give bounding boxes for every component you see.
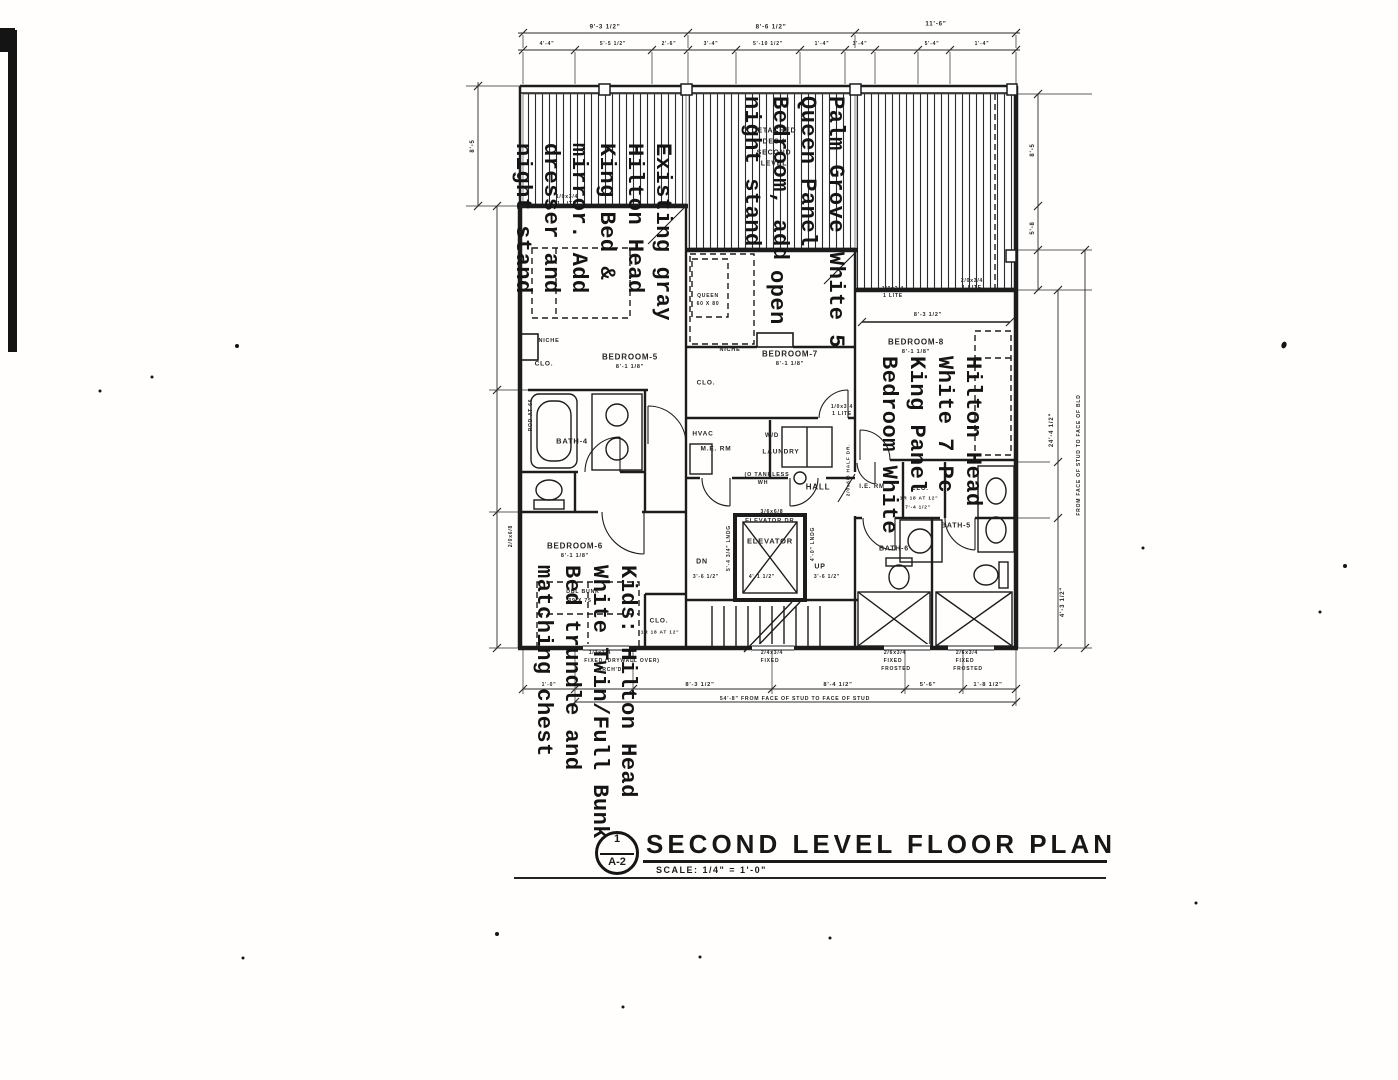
plan-label: 8'-5 xyxy=(470,139,476,152)
plan-label: FIXED xyxy=(761,658,780,664)
plan-label: 1'-4" xyxy=(975,41,990,47)
plan-label: 2/6x3/4 xyxy=(884,650,906,656)
plan-label: UP xyxy=(814,564,825,571)
plan-label: 2/0x6/8 xyxy=(508,525,514,547)
plan-label: BEDROOM-8 xyxy=(888,338,944,347)
plan-label: 2'-6" xyxy=(662,41,677,47)
plan-label: 8'-3 1/2" xyxy=(914,312,942,318)
plan-label: 5'-4 3/4" LNDG xyxy=(726,525,732,571)
plan-label: DN xyxy=(696,559,708,566)
plan-label: 4'-4" xyxy=(540,41,555,47)
plan-label: 8'-4 1/2" xyxy=(823,682,852,688)
plan-label: BEDROOM-6 xyxy=(547,542,603,551)
plan-label: 4'-3 1/2" xyxy=(1060,587,1066,617)
plan-label: 3'-6 1/2" xyxy=(693,574,719,580)
plan-label: 5'-10 1/2" xyxy=(753,41,783,47)
plan-label: 54'-8" FROM FACE OF STUD TO FACE OF STUD xyxy=(720,696,870,702)
plan-label: 3'-6 1/2" xyxy=(814,574,840,580)
plan-label: 2/0x6/8 HALF DR. xyxy=(847,444,852,497)
bathtub xyxy=(531,394,577,468)
plan-label: 9'-3 1/2" xyxy=(590,24,621,31)
detail-ref-number: 1 xyxy=(595,833,639,845)
plan-label: HALL xyxy=(806,483,831,492)
toilet-bowl xyxy=(974,565,998,585)
plan-label: FROM FACE OF STUD TO FACE OF BLD xyxy=(1076,394,1082,515)
plan-label: BATH-6 xyxy=(879,546,909,553)
plan-label: 1 LITE xyxy=(962,285,982,291)
plan-label: 8'-6 1/2" xyxy=(756,24,787,31)
plan-label: 8'-3 1/2" xyxy=(685,682,714,688)
plan-label: M.E. RM xyxy=(701,446,732,453)
plan-label: 24'-4 1/2" xyxy=(1049,413,1055,447)
plan-label: BEDROOM-7 xyxy=(762,350,818,359)
plan-label: 8'-5 xyxy=(1030,143,1036,156)
plan-label: 1'-4" xyxy=(815,41,830,47)
toilet-bowl xyxy=(889,565,909,589)
plan-label: 4'-0" LNDG xyxy=(810,527,816,561)
drawing-title: SECOND LEVEL FLOOR PLAN xyxy=(646,829,1116,860)
tankless-water-heater xyxy=(794,472,806,484)
plan-label: W/D xyxy=(765,433,779,439)
annotation-queen-middle: Palm Grove Queen Panel Bedroom, add nigh… xyxy=(737,96,849,260)
plan-label: (O TANKLESS xyxy=(745,472,790,478)
plan-label: 1/0x3/4 xyxy=(882,286,904,292)
plan-label: 5'-8 xyxy=(1030,221,1036,234)
plan-label: NICHE xyxy=(538,338,559,344)
detail-ref-code: A-2 xyxy=(595,856,639,868)
annotation-king-right: Hilton Head White 7 Pc King Panel Bedroo… xyxy=(874,356,986,534)
plan-label: 3'-4" xyxy=(853,41,868,47)
scanned-floor-plan-sheet: BEDROOM-58'-1 1/8"BEDROOM-78'-1 1/8"BEDR… xyxy=(0,0,1398,1080)
plan-label: ELEVATOR xyxy=(747,537,793,546)
plan-label: WH xyxy=(758,480,769,486)
annotation-open-note: open xyxy=(762,270,790,325)
scale-note: SCALE: 1/4" = 1'-0" xyxy=(656,865,767,875)
plan-label: 1R 18 AT 12" xyxy=(641,631,680,636)
plan-label: CLO. xyxy=(535,361,554,368)
queen-bed xyxy=(692,259,728,317)
plan-label: FIXED xyxy=(956,658,975,664)
plan-label: 1 LITE xyxy=(832,411,852,417)
plan-label: LAUNDRY xyxy=(762,449,799,456)
plan-label: FROSTED xyxy=(953,666,983,672)
plan-label: BEDROOM-5 xyxy=(602,353,658,362)
plan-label: 1/0x3/4 xyxy=(831,404,853,410)
stair-treads xyxy=(712,606,820,648)
plan-label: FIXED xyxy=(884,658,903,664)
toilet-tank xyxy=(534,500,564,509)
plan-label: 4'-1 1/2" xyxy=(749,574,775,580)
plan-label: 8'-1 1/8" xyxy=(776,361,804,367)
plan-label: 1 LITE xyxy=(883,293,903,299)
plan-label: ELEVATOR DR. xyxy=(745,518,797,524)
plan-label: QUEEN xyxy=(697,293,719,299)
plan-label: 8'-1 1/8" xyxy=(902,349,930,355)
plan-label: BATH-4 xyxy=(556,437,588,446)
plan-label: 5'-4" xyxy=(925,41,940,47)
annotation-master-left: Existing gray Hilton Head King Bed & mir… xyxy=(508,143,676,321)
plan-label: 1'-8 1/2" xyxy=(973,682,1002,688)
annotation-queen-middle-cont: White 5 xyxy=(821,252,849,348)
plan-label: 5'-5 1/2" xyxy=(600,41,626,47)
annotation-kids-bottom: Kids: Hilton Head White Twin/Full Bunk B… xyxy=(529,565,641,839)
plan-label: 2/6x3/4 xyxy=(956,650,978,656)
plan-label: CLO. xyxy=(697,380,716,387)
title-underline xyxy=(643,860,1107,863)
plan-label: FROSTED xyxy=(881,666,911,672)
plan-label: 60 X 80 xyxy=(697,301,720,307)
plan-label: 8'-1 1/8" xyxy=(561,553,589,559)
plan-label: 5'-6" xyxy=(920,682,937,688)
plan-label: 3/6x6/8 xyxy=(761,509,784,515)
double-vanity xyxy=(592,394,642,470)
toilet-bowl xyxy=(536,480,562,500)
plan-label: 11'-6" xyxy=(925,21,946,28)
bottom-rule xyxy=(514,877,1106,879)
plan-label: NICHE xyxy=(719,347,740,353)
plan-label: ROD AT 66 xyxy=(528,399,534,432)
plan-label: CLO. xyxy=(650,618,669,625)
plan-label: 8'-1 1/8" xyxy=(616,364,644,370)
plan-label: 3'-4" xyxy=(704,41,719,47)
plan-label: 2/4x3/4 xyxy=(761,650,783,656)
plan-label: 2/0x3/4 xyxy=(961,278,983,284)
floor-plan-drawing xyxy=(0,0,1398,1080)
plan-label: HVAC xyxy=(692,431,713,438)
